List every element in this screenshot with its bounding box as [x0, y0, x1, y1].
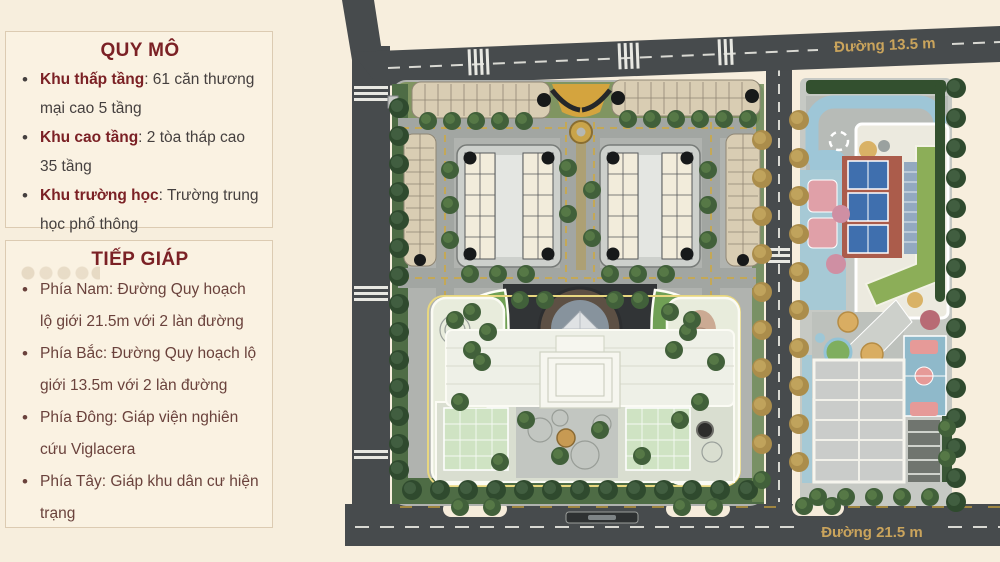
- list-item: Phía Tây: Giáp khu dân cư hiện trạng: [18, 466, 262, 530]
- road-bottom: Đường 21.5 m: [345, 500, 1000, 546]
- list-item: Khu thấp tầng: 61 căn thương mại cao 5 t…: [18, 65, 262, 123]
- list-item: Phía Nam: Đường Quy hoạch lộ giới 21.5m …: [18, 274, 262, 338]
- flowering-tree: [832, 205, 850, 223]
- tower-block-1: [457, 145, 561, 267]
- tennis-courts: [848, 161, 888, 253]
- service-walk: [908, 420, 940, 482]
- tower-block-2: [600, 145, 700, 267]
- panel-tiep-giap: TIẾP GIÁP Phía Nam: Đường Quy hoạch lộ g…: [5, 240, 273, 528]
- quy-mo-list: Khu thấp tầng: 61 căn thương mại cao 5 t…: [18, 65, 262, 239]
- school-sports-parcel: [800, 78, 952, 506]
- mini-court-1: [808, 180, 837, 212]
- main-site: [388, 80, 764, 506]
- list-item: Phía Bắc: Đường Quy hoạch lộ giới 13.5m …: [18, 338, 262, 402]
- slide: Đường 21.5 m Đường 13.5 m: [0, 0, 1000, 562]
- mini-court-2: [808, 218, 837, 248]
- panel-quy-mo: QUY MÔ Khu thấp tầng: 61 căn thương mại …: [5, 31, 273, 228]
- school-building: [814, 360, 904, 482]
- flowering-tree: [920, 310, 940, 330]
- list-item: Khu trường học: Trường trung học phổ thô…: [18, 181, 262, 239]
- panel-quy-mo-title: QUY MÔ: [18, 40, 262, 62]
- basketball-court: [904, 336, 946, 416]
- amphitheater-steps: [904, 162, 917, 254]
- flowering-tree: [826, 254, 846, 274]
- road-top: Đường 13.5 m: [352, 26, 1000, 86]
- clubhouse-entrance: [540, 352, 620, 408]
- tiep-giap-list: Phía Nam: Đường Quy hoạch lộ giới 21.5m …: [18, 274, 262, 530]
- list-item: Khu cao tầng: 2 tòa tháp cao 35 tầng: [18, 123, 262, 181]
- road-bottom-label: Đường 21.5 m: [821, 524, 923, 541]
- list-item: Phía Đông: Giáp viện nghiên cứu Viglacer…: [18, 402, 262, 466]
